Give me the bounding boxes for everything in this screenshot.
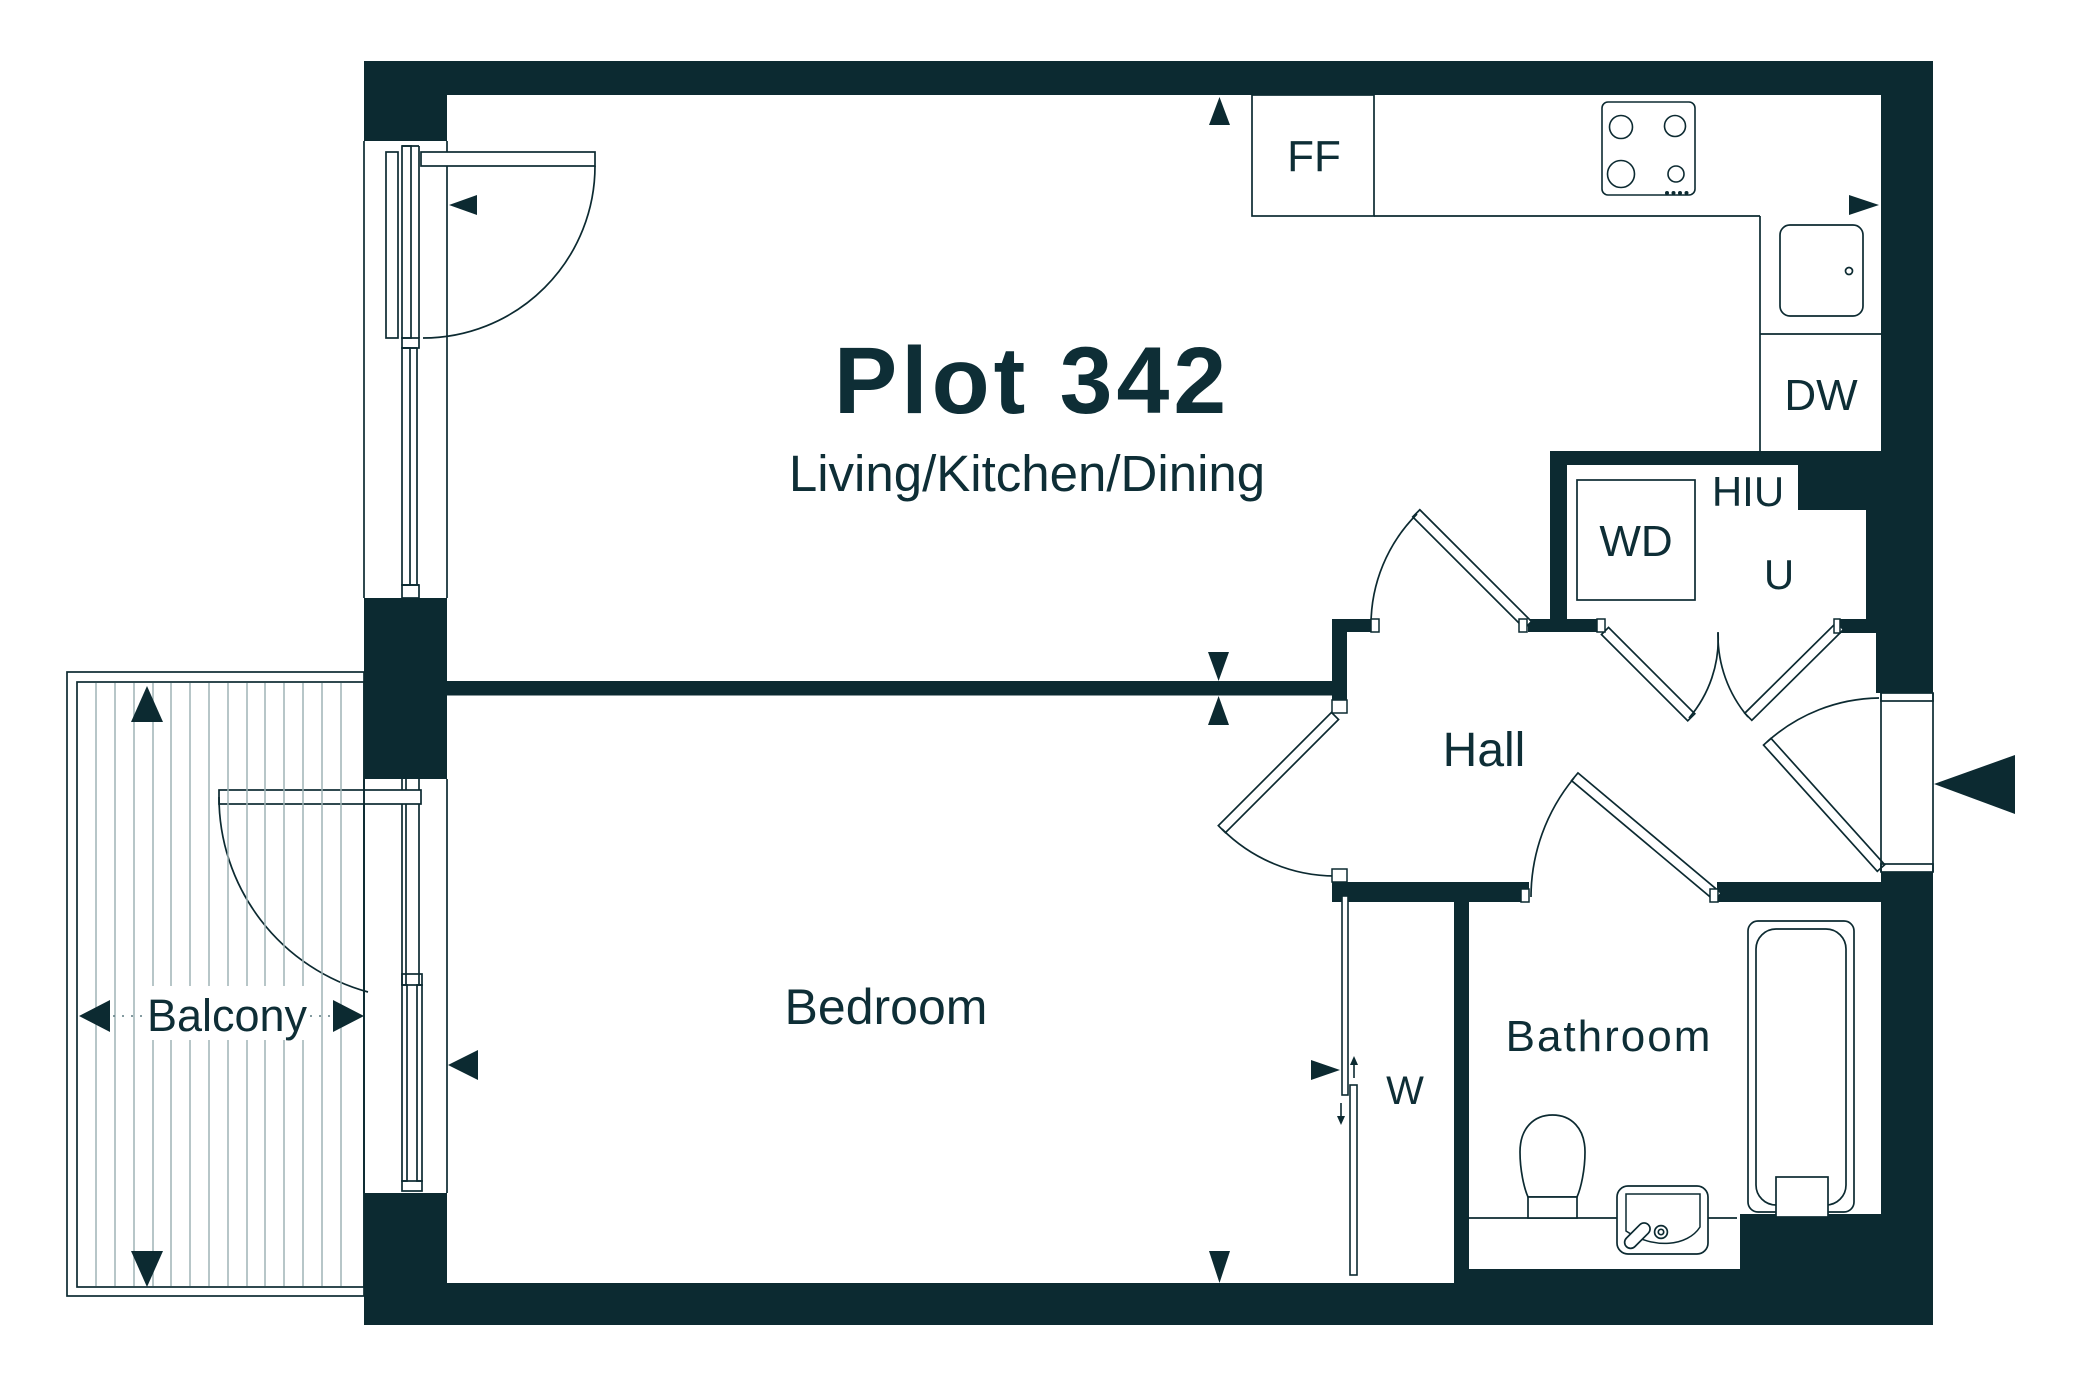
svg-text:Plot 342: Plot 342	[834, 328, 1230, 434]
svg-text:HIU: HIU	[1712, 468, 1784, 515]
svg-text:WD: WD	[1599, 517, 1672, 566]
svg-text:W: W	[1386, 1069, 1424, 1113]
svg-text:DW: DW	[1784, 371, 1858, 420]
svg-text:U: U	[1764, 551, 1794, 598]
svg-text:FF: FF	[1287, 132, 1341, 181]
svg-text:Balcony: Balcony	[147, 990, 308, 1041]
svg-text:Bathroom: Bathroom	[1506, 1012, 1713, 1061]
svg-text:Living/Kitchen/Dining: Living/Kitchen/Dining	[789, 445, 1265, 502]
svg-text:Bedroom: Bedroom	[785, 979, 988, 1035]
svg-text:Hall: Hall	[1443, 724, 1526, 777]
